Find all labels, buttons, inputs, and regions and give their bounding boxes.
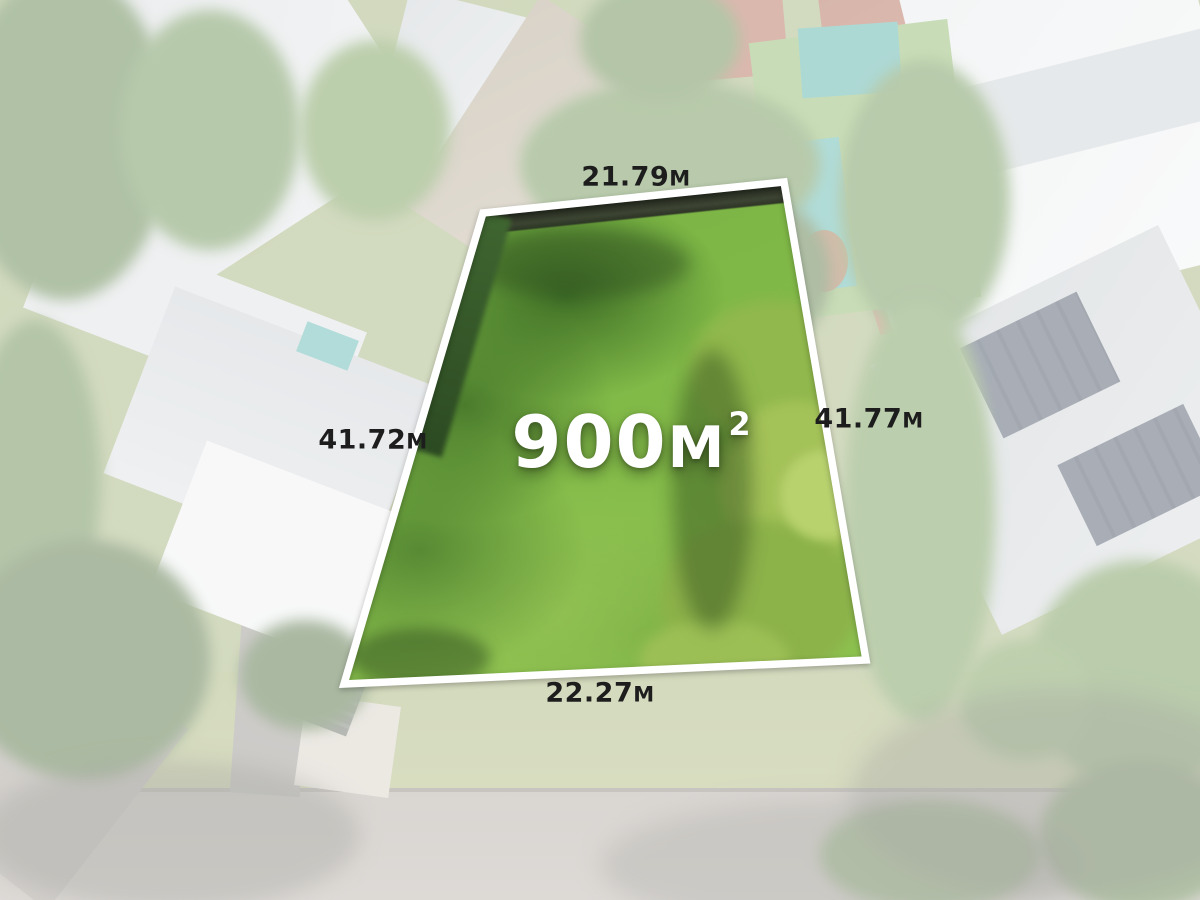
dimension-label-top: 21.79M (581, 162, 690, 193)
dimension-label-right: 41.77M (814, 404, 923, 435)
dimension-unit: M (633, 683, 654, 707)
dimension-value: 22.27 (545, 678, 633, 709)
area-label: 900M2 (511, 400, 750, 484)
dimension-value: 41.72 (318, 425, 406, 456)
dimension-label-bottom: 22.27M (545, 678, 654, 709)
dimension-value: 41.77 (814, 404, 902, 435)
dimension-unit: M (902, 409, 923, 433)
dimension-value: 21.79 (581, 162, 669, 193)
dimension-label-left: 41.72M (318, 425, 427, 456)
lot-tree-shadow (672, 350, 752, 630)
dimension-unit: M (406, 430, 427, 454)
area-superscript: 2 (728, 405, 752, 443)
area-value: 900 (511, 400, 667, 484)
area-unit: M (668, 415, 727, 481)
aerial-photo: 21.79M 41.77M 41.72M 22.27M 900M2 (0, 0, 1200, 900)
dimension-unit: M (669, 167, 690, 191)
